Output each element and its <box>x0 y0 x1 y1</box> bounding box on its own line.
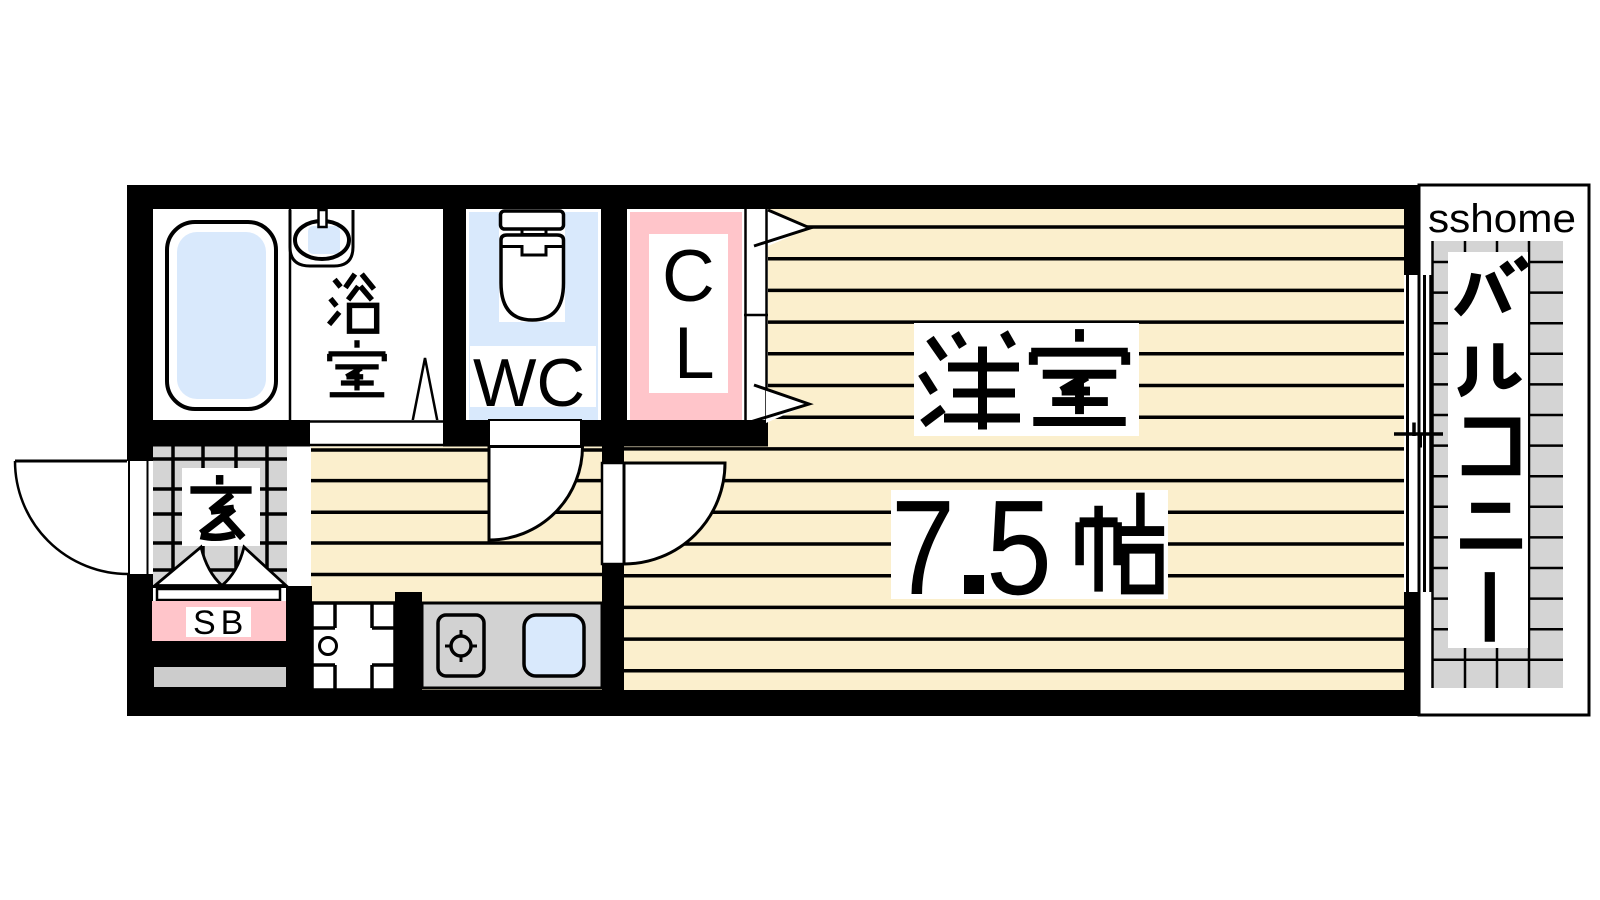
svg-text:sshome: sshome <box>1428 197 1576 241</box>
svg-text:7: 7 <box>891 472 955 623</box>
svg-text:SB: SB <box>193 604 248 642</box>
svg-text:5: 5 <box>986 472 1052 623</box>
svg-text:C: C <box>662 236 715 317</box>
svg-text:L: L <box>674 313 715 394</box>
svg-text:WC: WC <box>473 345 585 421</box>
